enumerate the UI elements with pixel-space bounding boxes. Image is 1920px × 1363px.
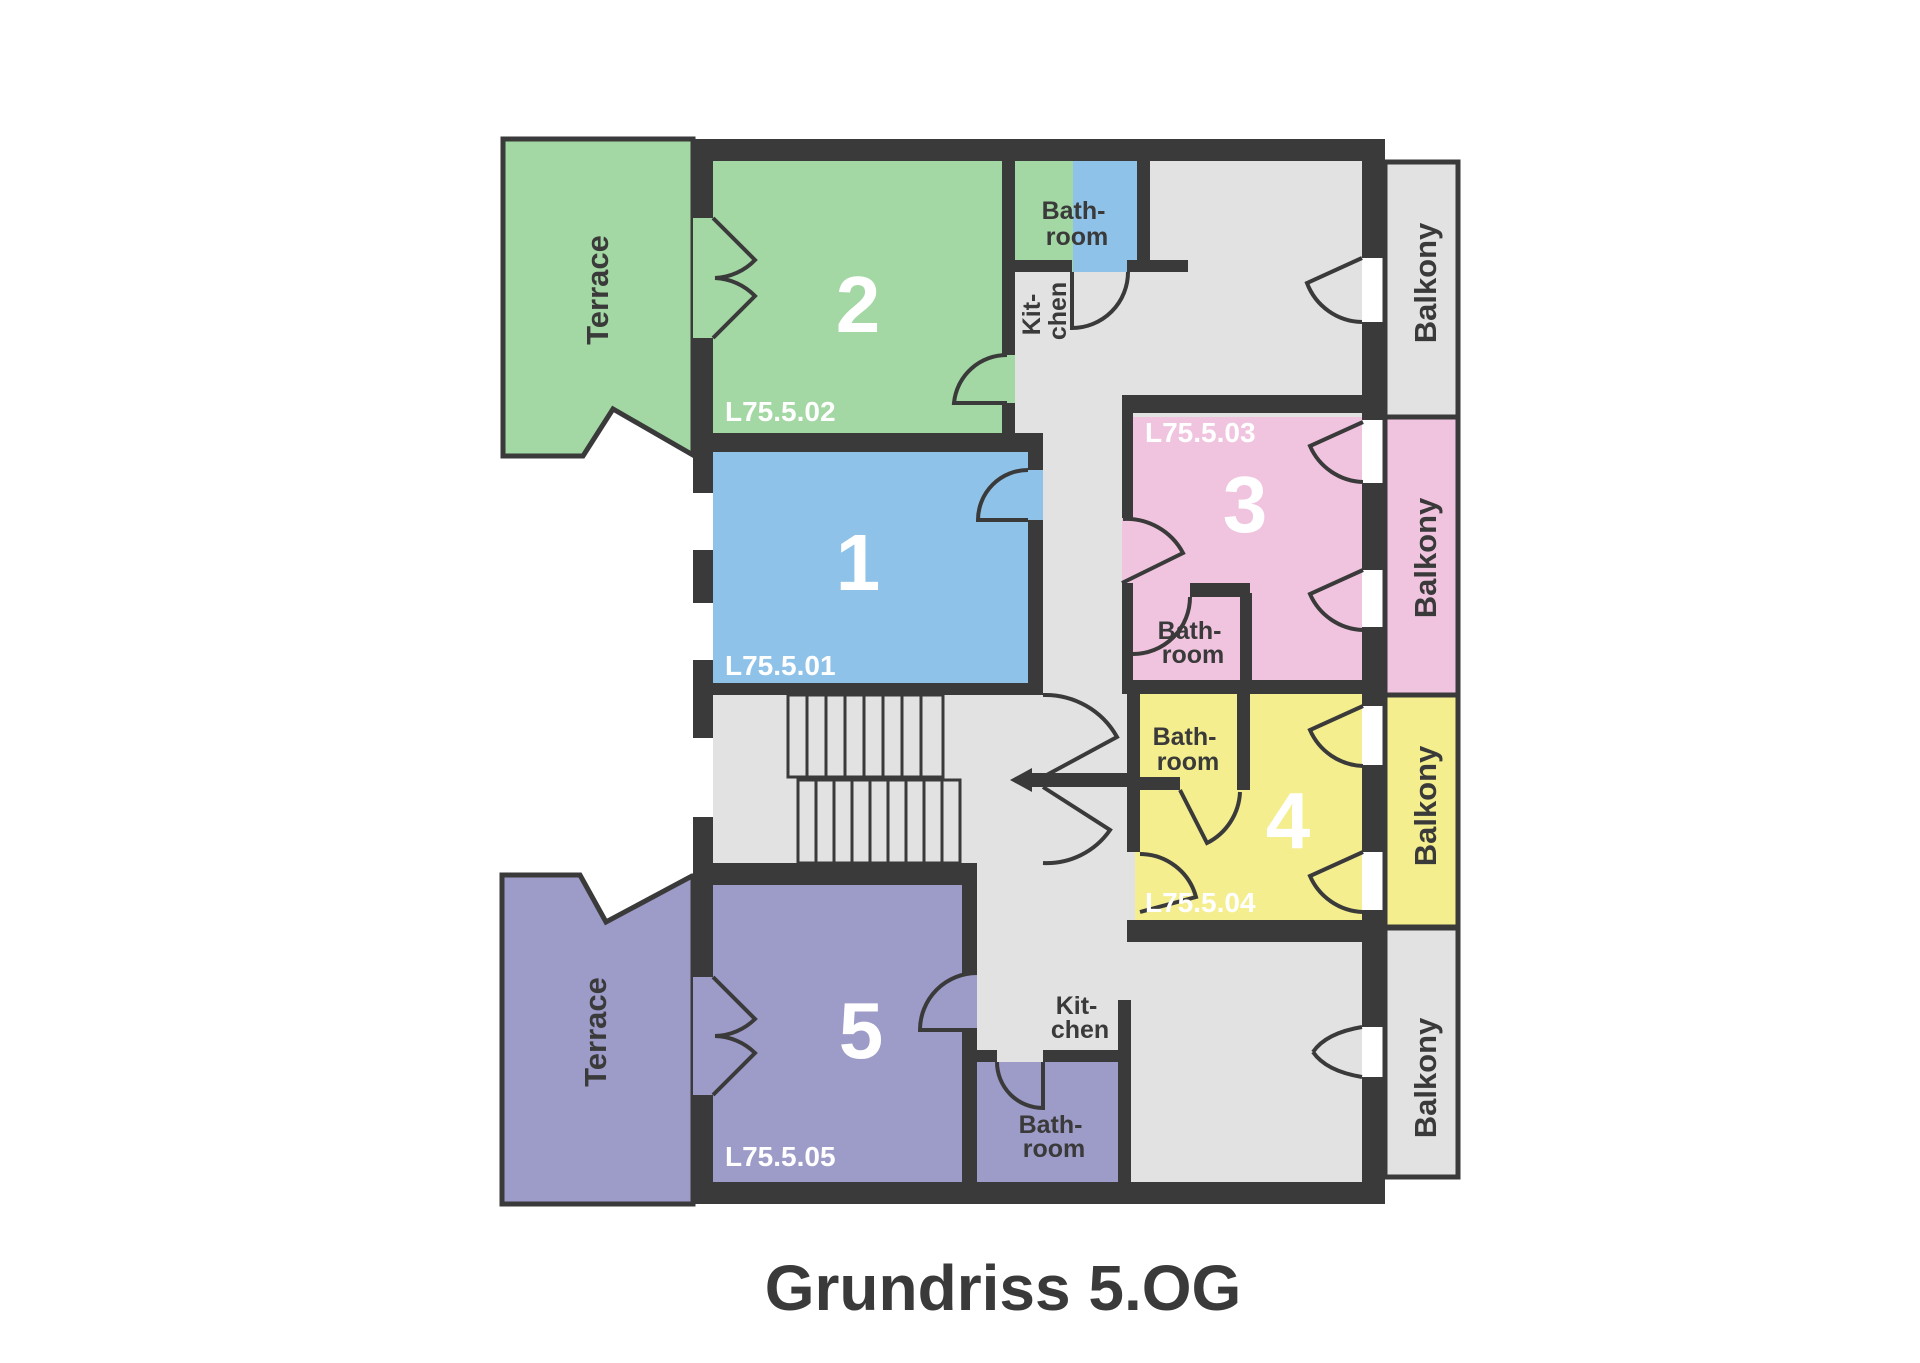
wall xyxy=(1013,260,1072,272)
label-line: chen xyxy=(1051,1016,1109,1044)
room-5-number: 5 xyxy=(839,986,884,1075)
floor-plan-page: 1 2 3 4 5 L75.5.01 L75.5.02 L75.5.03 L75… xyxy=(0,0,1920,1358)
label-line: Kit- xyxy=(1018,294,1046,336)
wall xyxy=(1240,593,1252,692)
wall xyxy=(1237,694,1250,790)
label-line: room xyxy=(1157,748,1220,776)
balcony-label-apartment3: Balkony xyxy=(1408,497,1443,618)
wall xyxy=(1127,920,1385,942)
wall xyxy=(693,338,713,493)
wall xyxy=(977,1050,997,1062)
wall xyxy=(1362,765,1385,852)
room-4-number: 4 xyxy=(1266,776,1311,865)
wall xyxy=(962,885,977,973)
room-2-code: L75.5.02 xyxy=(725,396,836,427)
room-1-number: 1 xyxy=(836,518,881,607)
wall xyxy=(693,817,713,977)
label-line: room xyxy=(1046,223,1109,251)
bathroom-4-label: Bath- room xyxy=(1153,723,1224,776)
room-3-number: 3 xyxy=(1223,460,1268,549)
wall xyxy=(1362,627,1385,706)
wall xyxy=(1137,161,1150,272)
wall xyxy=(1127,260,1188,272)
balcony-label-top: Balkony xyxy=(1408,222,1443,343)
room-3-code: L75.5.03 xyxy=(1145,417,1256,448)
wall xyxy=(1002,403,1015,433)
wall xyxy=(1118,1000,1131,1182)
wall xyxy=(1127,777,1180,790)
wall xyxy=(713,863,977,885)
floor-plan-canvas: 1 2 3 4 5 L75.5.01 L75.5.02 L75.5.03 L75… xyxy=(0,0,1920,1358)
kitchen-5-label: Kit- chen xyxy=(1051,992,1109,1044)
label-line: room xyxy=(1023,1135,1086,1163)
wall xyxy=(1362,483,1385,570)
label-line: room xyxy=(1162,641,1225,669)
wall xyxy=(1028,520,1043,683)
terrace-2-label: Terrace xyxy=(580,235,615,345)
balcony-label-apartment4: Balkony xyxy=(1408,745,1443,866)
label-line: Bath- xyxy=(1042,197,1106,225)
terrace5-door-gap xyxy=(693,977,715,1095)
page-title: Grundriss 5.OG xyxy=(765,1252,1242,1324)
wall xyxy=(713,683,1043,695)
wall xyxy=(1127,694,1140,852)
wall xyxy=(1028,452,1043,470)
bathroom-3-label: Bath- room xyxy=(1158,617,1229,669)
wall xyxy=(693,550,713,603)
terrace2-door-gap xyxy=(693,218,715,338)
wall xyxy=(1362,1077,1385,1204)
room-5-code: L75.5.05 xyxy=(725,1141,836,1172)
wall xyxy=(694,139,1385,161)
room-1-code: L75.5.01 xyxy=(725,650,836,681)
wall xyxy=(693,1182,1385,1204)
terrace-5-label: Terrace xyxy=(578,977,613,1087)
label-line: Bath- xyxy=(1153,723,1217,751)
wall xyxy=(1122,413,1133,518)
wall xyxy=(1122,583,1133,692)
wall xyxy=(1122,395,1385,413)
label-line: chen xyxy=(1044,282,1072,340)
room-2-number: 2 xyxy=(836,260,881,349)
wall xyxy=(1002,161,1015,355)
kitchen-north-label: Kit- chen xyxy=(1018,282,1072,340)
wall xyxy=(693,139,713,218)
wall xyxy=(1362,139,1385,258)
bathroom-north-label: Bath- room xyxy=(1042,197,1113,251)
wall xyxy=(962,1030,977,1182)
wall xyxy=(1122,680,1385,694)
wall xyxy=(693,660,713,738)
room-4-code: L75.5.04 xyxy=(1145,887,1256,918)
balcony-label-bottom: Balkony xyxy=(1408,1017,1443,1138)
bathroom-5-label: Bath- room xyxy=(1019,1111,1090,1163)
wall xyxy=(1043,1050,1122,1062)
wall xyxy=(713,433,1043,452)
